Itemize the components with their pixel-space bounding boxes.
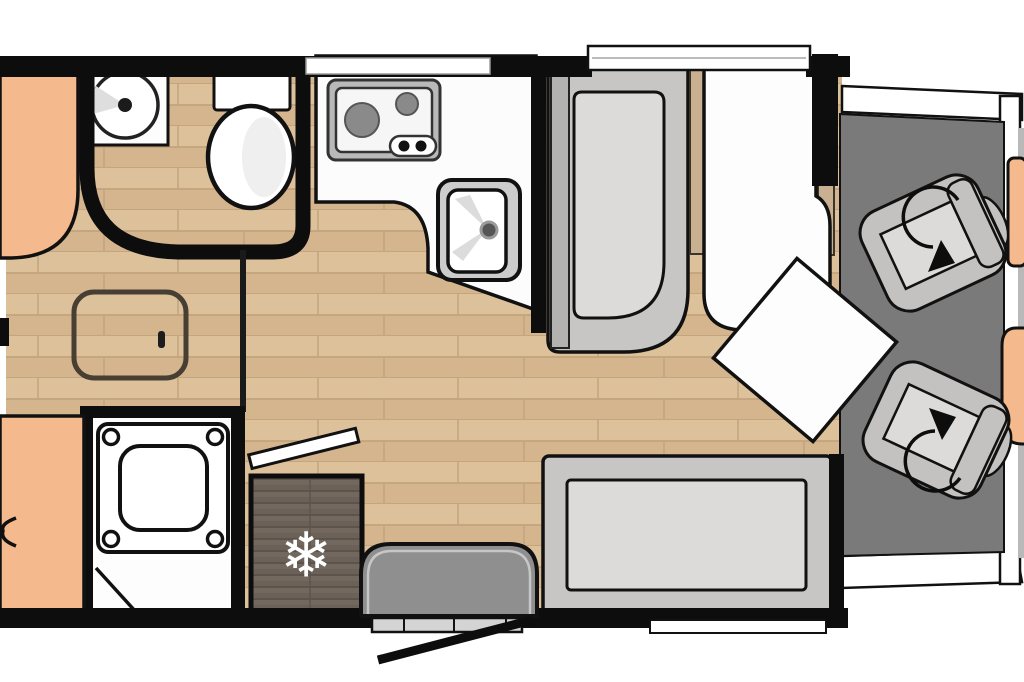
hob-knob	[416, 141, 427, 152]
divider-wall	[531, 56, 546, 333]
top-wall	[0, 56, 592, 77]
snowflake-icon: ❄	[280, 519, 332, 592]
wall-stub-bottom-right	[829, 454, 844, 624]
fridge: ❄	[251, 476, 362, 614]
front-bench-unit	[548, 66, 688, 352]
travel-seat	[361, 544, 537, 616]
hob-burner-large	[345, 103, 379, 137]
shower-corner-dot	[208, 532, 223, 547]
floorplan-canvas: ❄	[0, 0, 1024, 682]
floorplan-svg: ❄	[0, 0, 1024, 682]
hob-burner-small	[396, 93, 418, 115]
partition-wall	[240, 250, 246, 412]
toilet-bowl-shading	[242, 117, 286, 197]
bed-frame-left	[690, 58, 704, 254]
cushion-right-top	[1008, 158, 1024, 266]
rear-bed-cushion-bottom	[0, 416, 84, 614]
bench-cushion-panel	[574, 92, 664, 318]
hob-knob	[399, 141, 410, 152]
kitchen-window	[306, 58, 490, 74]
sofa-bench	[543, 456, 832, 614]
washbasin-drain	[118, 98, 132, 112]
bottom-skirt-band	[650, 620, 826, 633]
shower-corner-dot	[208, 430, 223, 445]
shower-corner-dot	[104, 532, 119, 547]
sink-tap	[481, 222, 497, 238]
wall-stub-left	[0, 318, 9, 346]
lounge-window	[588, 46, 810, 70]
floor-hatch-handle	[158, 331, 165, 348]
shower-corner-dot	[104, 430, 119, 445]
hob-controls	[390, 136, 436, 156]
sofa-cushion-panel	[567, 480, 806, 590]
shower-room	[80, 406, 245, 616]
shower-wall-right	[231, 406, 245, 616]
wall-stub-top-right	[812, 54, 838, 186]
shower-wall-top	[80, 406, 242, 418]
bench-side-strip	[551, 69, 569, 348]
rear-bed-cushion-top	[0, 58, 78, 258]
